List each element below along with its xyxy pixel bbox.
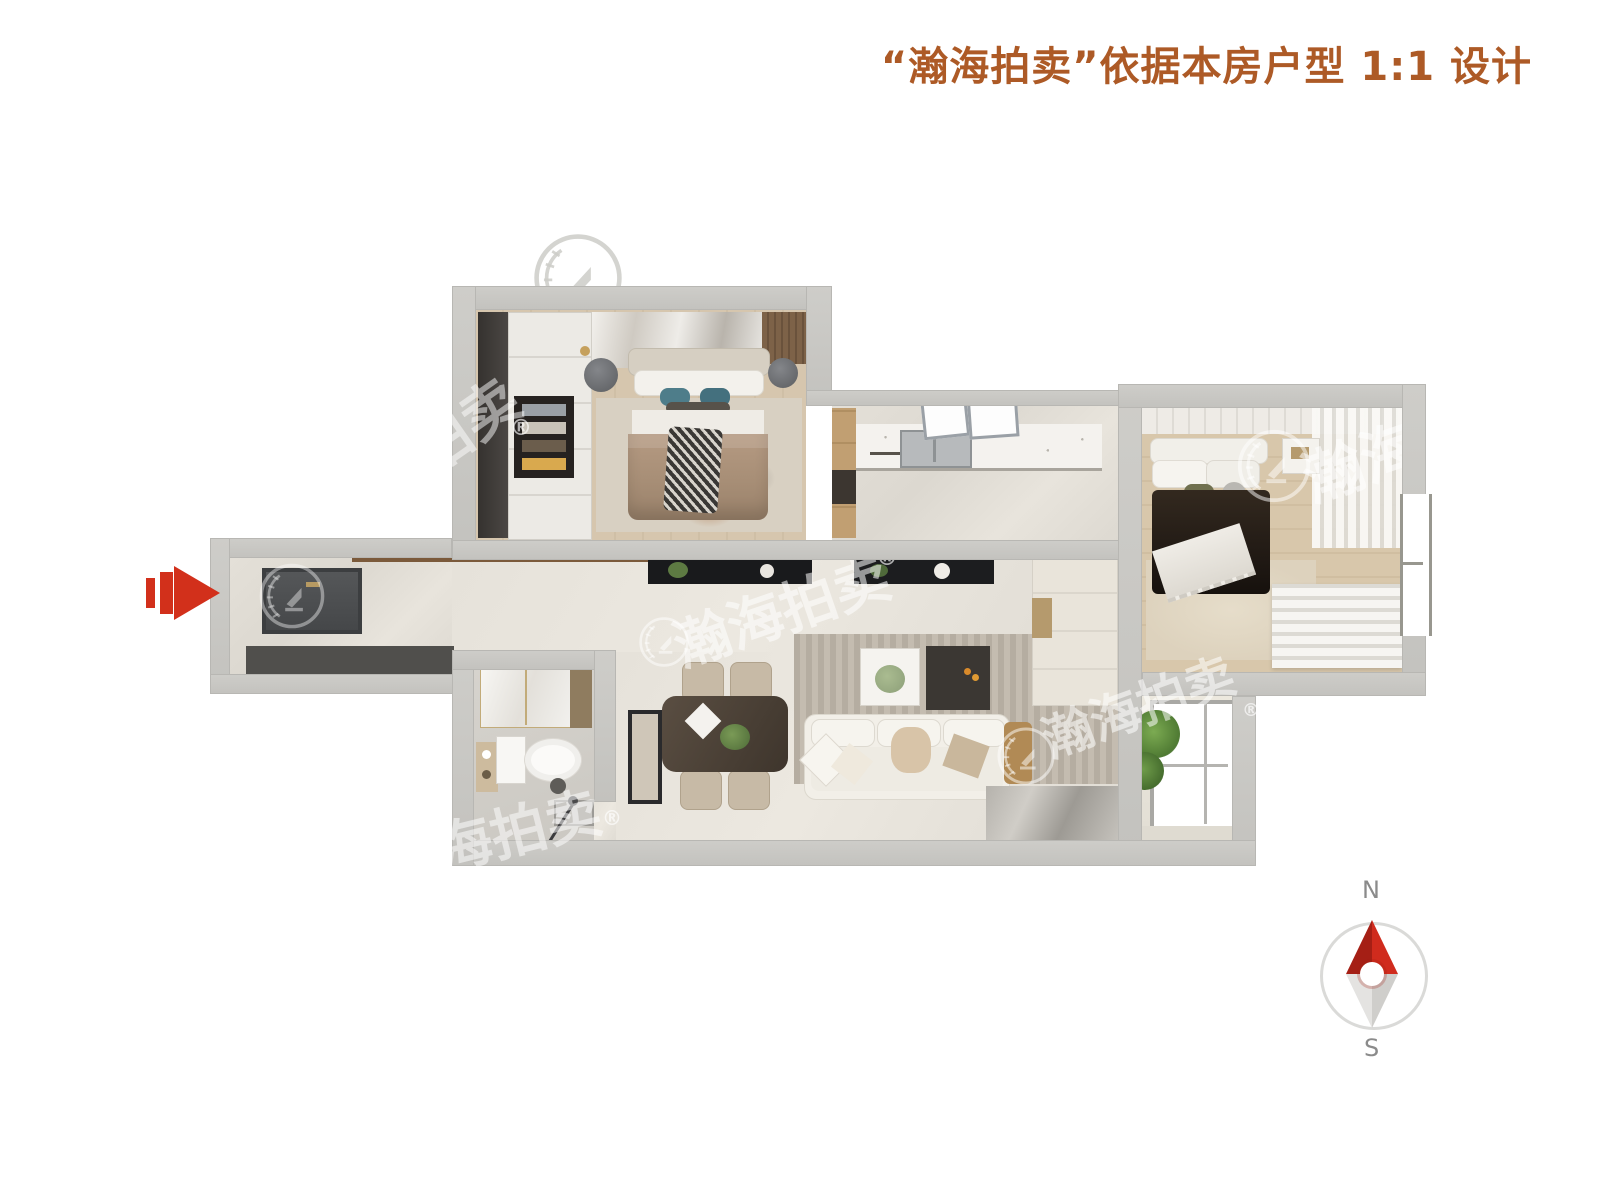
shower-head [568, 796, 578, 806]
bedroom-window [1400, 494, 1432, 636]
bedroom-door-panel [478, 312, 508, 538]
toilet-paper-roll [550, 778, 566, 794]
wall [1142, 672, 1426, 696]
arrow-tail-segment [160, 572, 173, 614]
artwork-plant-motif [875, 665, 905, 693]
folded-clothes [522, 404, 566, 416]
wall [1118, 384, 1426, 408]
bed-pillows-white [634, 370, 764, 396]
sheer-curtain [1312, 408, 1402, 548]
wall [452, 540, 1142, 560]
dining-table [662, 696, 788, 772]
decor-plant [668, 562, 688, 578]
nightstand-tray [1291, 447, 1309, 459]
wall [1118, 390, 1142, 866]
registered-mark: ® [510, 416, 532, 441]
wall [452, 650, 474, 866]
floor-lamp [580, 346, 590, 356]
kitchen-cabinet-niche [832, 470, 856, 504]
storage-cabinet-column [1032, 556, 1118, 706]
compass-north-label: N [1362, 876, 1380, 904]
wall [452, 286, 476, 560]
kitchen [806, 390, 1142, 560]
compass: N S [1300, 876, 1450, 1062]
toiletry-bottle [482, 770, 491, 779]
toilet-tank [496, 736, 526, 784]
mirror-split [525, 669, 527, 725]
page: “瀚海拍卖”依据本房户型 1:1 设计 [0, 0, 1600, 1200]
bathroom [452, 650, 616, 866]
decor-fruit [972, 674, 979, 681]
sofa-throw [891, 727, 931, 773]
nightstand [1282, 438, 1320, 474]
bedroom-second: 瀚海拍 [1118, 384, 1434, 700]
nightstand-stool [584, 358, 618, 392]
cabinet-open-shelf [1032, 598, 1052, 638]
side-table-wood [1004, 722, 1032, 784]
compass-south-label: S [1364, 1034, 1379, 1062]
folded-clothes [522, 440, 566, 452]
table-napkin [685, 703, 722, 740]
window-mullion [1154, 764, 1228, 767]
wall [210, 674, 474, 694]
entry-door-leaf [262, 568, 362, 634]
window-mullion [1403, 562, 1423, 565]
arrow-tail-segment [146, 578, 155, 608]
decor-bowl [760, 564, 774, 578]
vanity-mirror-cabinet [480, 668, 572, 728]
dining-chair [680, 770, 722, 810]
wall-console-shelf [854, 558, 994, 584]
wall [806, 286, 832, 406]
leaning-art-frame [628, 710, 662, 804]
dining-chair [728, 770, 770, 810]
artwork [860, 648, 920, 706]
wall [210, 538, 452, 558]
decor-fruit [964, 668, 971, 675]
door-handle [306, 582, 320, 587]
wall [452, 286, 824, 310]
wall-console-shelf [648, 558, 812, 584]
roman-shade-stack [1272, 584, 1402, 668]
bath-shelf-rack [476, 742, 498, 792]
wall [806, 390, 1142, 406]
plaid-throw [663, 426, 723, 514]
tv-media-panel [926, 646, 990, 710]
balcony-sill [1142, 826, 1232, 840]
wall [452, 840, 1256, 866]
bath-tall-cabinet [570, 668, 592, 728]
folded-clothes [522, 458, 566, 470]
nightstand-stool [768, 358, 798, 388]
decor-tray [934, 563, 950, 579]
wall [452, 650, 616, 670]
registered-mark: ® [602, 806, 622, 830]
sofa [804, 714, 1010, 800]
wall [594, 650, 616, 802]
toilet-bowl [524, 738, 582, 782]
registered-mark: ® [1242, 700, 1260, 721]
compass-hub [1360, 962, 1384, 986]
bedroom-main [452, 286, 832, 560]
entry-direction-arrow-right [146, 564, 222, 620]
entry-floor-mat [246, 646, 454, 674]
toiletry-bottle [482, 750, 491, 759]
arrow-head [174, 566, 220, 620]
drawer-handle [870, 452, 900, 455]
laurel-wreath-badge [638, 616, 690, 668]
marble-floor-patch [986, 786, 1120, 840]
table-plant [720, 724, 750, 750]
